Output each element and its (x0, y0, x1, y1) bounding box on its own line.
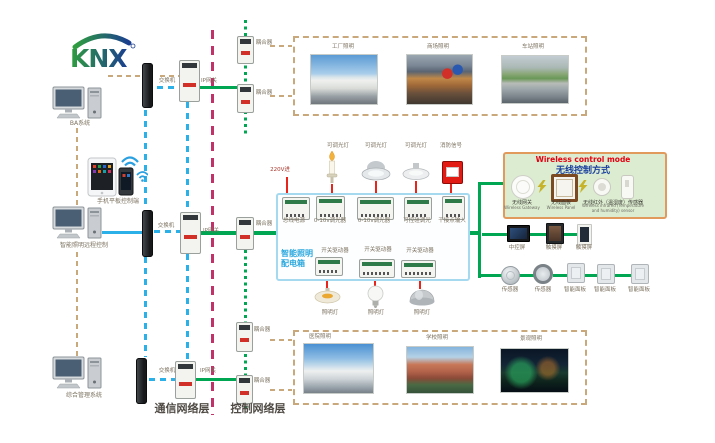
smart-panel-icon (631, 264, 649, 284)
desktop-computer-icon (52, 86, 104, 124)
dimmer-module-icon (316, 196, 345, 220)
touch-screen-label: 触摸屏 (546, 246, 563, 252)
central-screen-label: 中控屏 (509, 246, 526, 252)
wireless-gateway-icon (511, 175, 535, 199)
photo-school-lighting (406, 346, 474, 394)
smart-panel-label: 智能面板 (628, 288, 650, 294)
sensor-icon (533, 264, 553, 284)
ip-gateway-icon (175, 361, 196, 399)
management-link-line (76, 128, 78, 206)
lamp-label: 照明灯 (368, 311, 385, 317)
coupler-label: 耦合器 (256, 91, 273, 97)
coupler-to-area-link (270, 389, 292, 391)
wireless-humidity-sensor-icon (621, 175, 634, 199)
wireless-link-icon (578, 180, 588, 193)
integrated-management-label: 综合管理系统 (66, 393, 102, 399)
dry-contact-label: 干接点输入 (438, 219, 466, 225)
coupler-to-area-link (270, 339, 292, 341)
bus-power-module-icon (282, 197, 310, 220)
ethernet-line (157, 86, 179, 89)
wireless-sensor-label-en: Wireless infrared (Temperature and humid… (578, 204, 648, 214)
wireless-panel-inner (556, 179, 573, 197)
dimmer-label: 0-10v调光器 (358, 219, 390, 225)
smart-panel-icon (597, 264, 615, 284)
network-switch-icon (136, 358, 147, 404)
desktop-computer-icon (52, 356, 104, 394)
triac-dimmer-module-icon (404, 197, 432, 220)
ceiling-light-icon (314, 287, 341, 306)
desktop-computer-icon (52, 206, 104, 244)
ba-system-label: BA系统 (70, 121, 90, 127)
screen (510, 228, 527, 239)
screen (580, 227, 589, 242)
mobile-tablet-label: 手机平板控制端 (97, 199, 139, 205)
central-control-screen-icon (507, 225, 530, 242)
knx-bus-line (583, 274, 598, 277)
knx-logo: KNX (66, 30, 138, 72)
station-lighting-label: 车站照明 (522, 45, 544, 51)
hospital-lighting-label: 医院照明 (309, 335, 331, 341)
communication-layer-label: 通信网络层 (155, 400, 210, 416)
bus-power-label: 总线电源 (283, 219, 305, 225)
sensor-slot (625, 180, 629, 187)
knx-bus-line (553, 274, 568, 277)
network-switch-icon (142, 63, 153, 108)
knx-bus-line (195, 378, 239, 381)
ethernet-line (186, 254, 189, 360)
photo-landscape-lighting (500, 348, 569, 393)
sensor-label: 传感器 (535, 288, 552, 294)
lamp-label: 照明灯 (322, 311, 339, 317)
coupler-icon (237, 36, 254, 64)
wireless-panel-icon (551, 174, 578, 202)
switch-driver-label: 开关驱动器 (321, 249, 349, 255)
management-link-line (108, 75, 142, 77)
ethernet-line (154, 230, 180, 233)
ip-gateway-icon (180, 212, 201, 254)
dimmer-label: 0-10v调光器 (314, 219, 346, 225)
ethernet-line (186, 102, 189, 210)
management-link-line (160, 75, 180, 77)
coupler-label: 耦合器 (256, 222, 273, 228)
dimmable-lamp-label: 可调光灯 (365, 144, 387, 150)
coupler-label: 耦合器 (256, 41, 273, 47)
management-link-line (76, 252, 78, 356)
knx-lighting-system-diagram: KNX BA系统 手机平板控制端 (0, 0, 715, 443)
switch-label: 交换机 (159, 79, 176, 85)
fire-alarm-icon (442, 161, 463, 184)
photo-mall-lighting (406, 54, 473, 105)
control-layer-label: 控制网络层 (231, 400, 286, 416)
landscape-lighting-label: 景观照明 (520, 337, 542, 343)
touch-screen-icon (546, 223, 564, 244)
switch-driver-module-icon (315, 257, 343, 276)
smart-panel-label: 智能面板 (564, 288, 586, 294)
photo-station-lighting (501, 55, 569, 104)
tablet-phone-wifi-icon (86, 150, 148, 200)
dimmable-lamp-label: 可调光灯 (405, 144, 427, 150)
switch-driver-label: 开关驱动器 (406, 249, 434, 255)
knx-bus-line (482, 233, 508, 236)
switch-driver-label: 开关驱动器 (364, 248, 392, 254)
ip-gateway-label: IP网关 (203, 229, 219, 235)
wireless-panel-label-en: Wireless Panel (547, 205, 576, 210)
candle-lamp-icon (325, 151, 339, 184)
coupler-icon (237, 84, 254, 113)
knx-bus-line (481, 182, 505, 185)
photo-factory-lighting (310, 54, 378, 105)
knx-bus-line (481, 274, 502, 277)
sensor-lens (598, 183, 606, 191)
knx-bus-line (478, 182, 481, 278)
downlight-icon (361, 159, 391, 181)
coupler-label: 耦合器 (254, 328, 271, 334)
smart-panel-label: 智能面板 (594, 288, 616, 294)
mall-lighting-label: 商场照明 (427, 45, 449, 51)
touch-screen-label: 触摸屏 (576, 246, 593, 252)
coupler-icon (236, 217, 254, 250)
wireless-gateway-label-en: Wireless Gateway (504, 205, 540, 210)
dome-light-icon (409, 287, 435, 307)
svg-text:KNX: KNX (70, 44, 127, 72)
switch-label: 交换机 (159, 369, 176, 375)
screen (549, 226, 561, 241)
power-in-label: 220V进 (270, 168, 290, 174)
bulb-icon (367, 285, 384, 309)
photo-hospital-lighting (303, 343, 374, 394)
network-switch-icon (142, 210, 153, 257)
switch-driver-module-icon (401, 260, 436, 278)
triac-dimmer-label: 可控硅调光 (403, 219, 431, 225)
dry-contact-module-icon (442, 196, 465, 220)
touch-screen-icon (577, 224, 592, 245)
cabinet-title-line2: 配电箱 (281, 260, 305, 268)
dimmable-lamp-label: 可调光灯 (327, 144, 349, 150)
ethernet-line (149, 378, 175, 381)
switch-driver-module-icon (359, 259, 395, 278)
coupler-to-area-link (270, 95, 292, 97)
wireless-link-icon (537, 180, 547, 193)
fire-signal-label: 消防信号 (440, 144, 462, 150)
coupler-to-area-link (270, 45, 292, 47)
switch-label: 交换机 (158, 224, 175, 230)
smart-panel-icon (567, 263, 585, 283)
sensor-ring (506, 271, 515, 280)
knx-bus-line (562, 233, 578, 236)
ip-gateway-label: IP网关 (200, 369, 216, 375)
sensor-label: 传感器 (502, 288, 519, 294)
smart-lighting-remote-label: 智能照明远程控制 (60, 243, 108, 249)
coupler-icon (236, 322, 253, 352)
ethernet-line (144, 257, 147, 357)
sensor-icon (501, 266, 520, 285)
ethernet-line (102, 231, 142, 234)
coupler-label: 耦合器 (254, 379, 271, 385)
knx-bus-line (613, 274, 632, 277)
factory-lighting-label: 工厂照明 (332, 45, 354, 51)
dimmer-module-icon (357, 197, 394, 220)
wireless-gateway-ring (516, 180, 530, 194)
ceiling-lamp-icon (402, 161, 430, 181)
wireless-infrared-sensor-icon (593, 178, 611, 196)
lamp-label: 照明灯 (414, 311, 431, 317)
school-lighting-label: 学校照明 (426, 336, 448, 342)
ip-gateway-label: IP网关 (201, 79, 217, 85)
ip-gateway-icon (179, 60, 200, 102)
cabinet-title-line1: 智能照明 (281, 250, 313, 258)
knx-bus-line (528, 233, 547, 236)
